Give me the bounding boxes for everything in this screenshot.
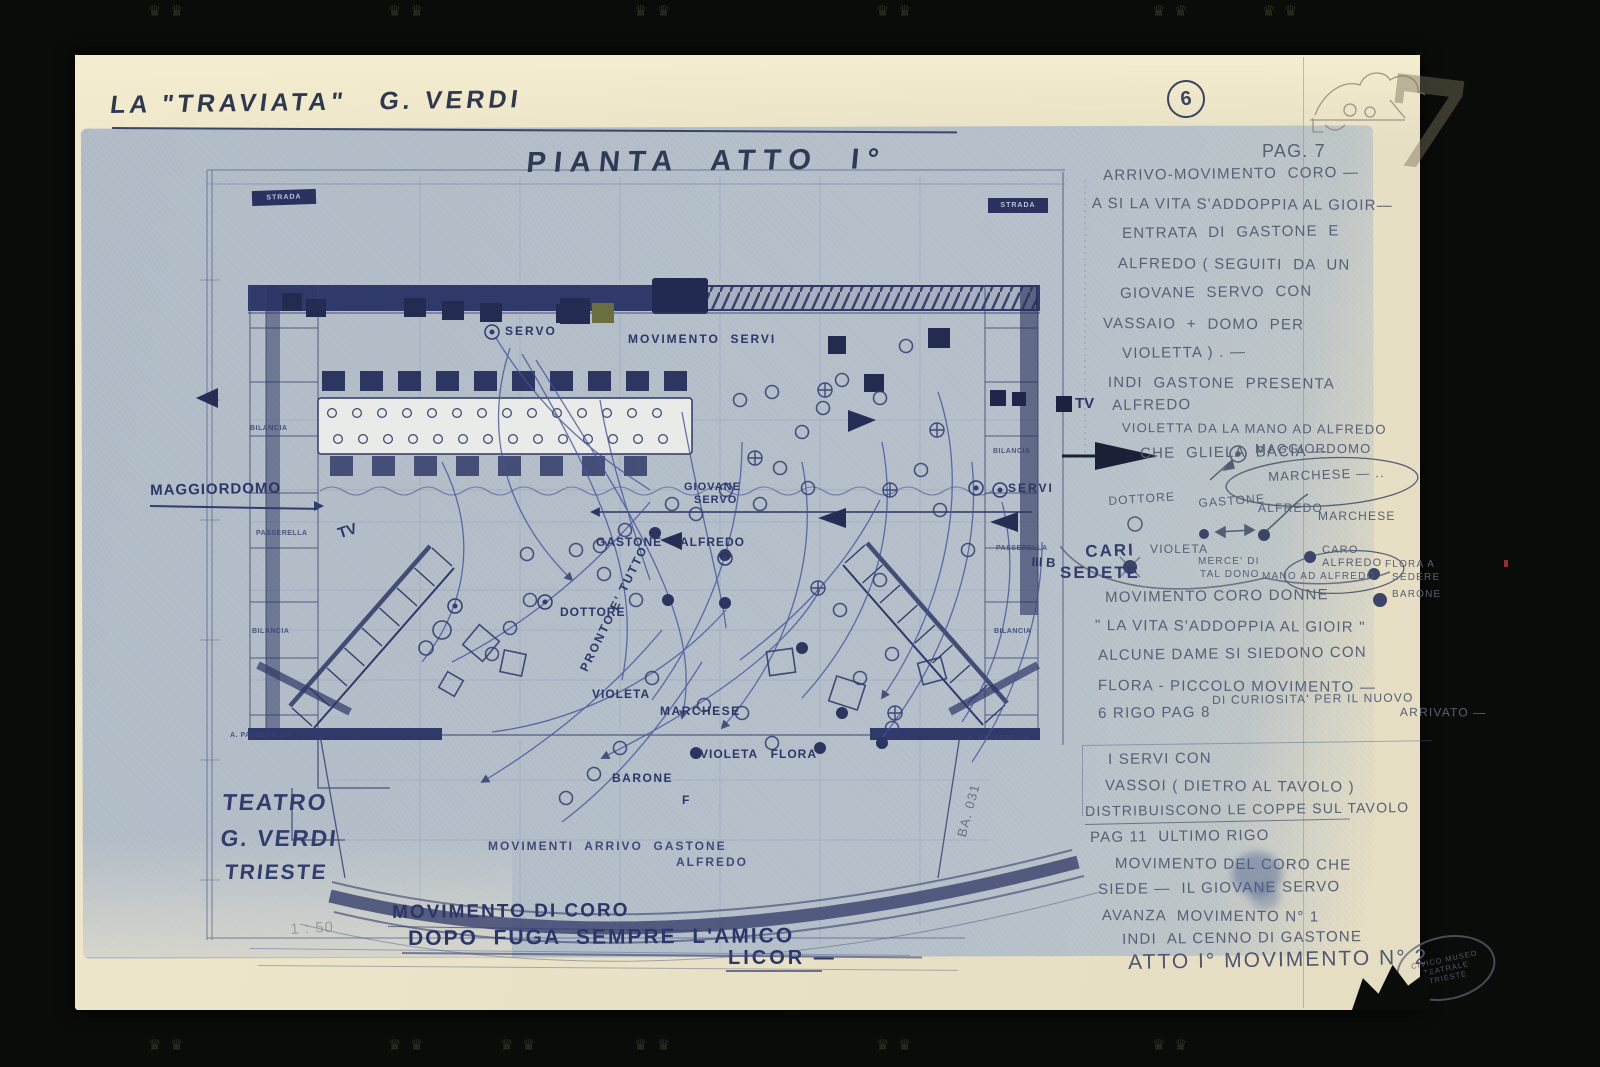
bilancia-right-1: BILANCIA bbox=[993, 448, 1030, 455]
note-line: INDI GASTONE PRESENTA bbox=[1108, 375, 1335, 392]
plan-label-alfredo: ALFREDO bbox=[680, 536, 745, 549]
note-line: PAG 11 ULTIMO RIGO bbox=[1090, 828, 1270, 846]
theater-name-3: TRIESTE bbox=[224, 862, 329, 884]
note-line: SIEDE — IL GIOVANE SERVO bbox=[1098, 879, 1340, 898]
note-line: INDI AL CENNO DI GASTONE bbox=[1122, 929, 1362, 948]
sketch-sedere: SEDERE bbox=[1392, 573, 1440, 584]
page-numeral-7: 7 bbox=[1373, 47, 1477, 203]
note-line: ALCUNE DAME SI SIEDONO CON bbox=[1098, 645, 1367, 664]
note-line: AVANZA MOVIMENTO N° 1 bbox=[1102, 908, 1320, 925]
plan-label-gastone: GASTONE bbox=[596, 536, 662, 549]
crown-mark-icon: ♛ bbox=[657, 1036, 670, 1054]
sketch-tal-dono: TAL DONO bbox=[1200, 570, 1260, 581]
crown-mark-icon: ♛ bbox=[170, 1036, 183, 1054]
crown-mark-icon: ♛ bbox=[500, 1036, 513, 1054]
plan-label-marchese: MARCHESE bbox=[660, 705, 741, 718]
plan-label-violeta-flora: VIOLETA FLORA bbox=[700, 748, 817, 761]
crown-mark-icon: ♛ bbox=[634, 2, 647, 20]
note-line: GIOVANE SERVO CON bbox=[1120, 284, 1312, 302]
sketch-caro-alfredo: ALFREDO bbox=[1322, 558, 1382, 570]
crown-mark-icon: ♛ bbox=[170, 2, 183, 20]
plan-label-arrivo: MOVIMENTI ARRIVO GASTONE bbox=[488, 840, 727, 853]
note-line: DI CURIOSITA' PER IL NUOVO bbox=[1212, 692, 1414, 707]
crown-mark-icon: ♛ bbox=[148, 2, 161, 20]
note-line: A SI LA VITA S'ADDOPPIA AL GIOIR— bbox=[1092, 196, 1393, 214]
sketch-barone: BARONE bbox=[1392, 590, 1441, 601]
note-line: ENTRATA DI GASTONE E bbox=[1122, 223, 1340, 241]
note-line: MOVIMENTO CORO DONNE bbox=[1105, 587, 1329, 605]
bilancia-right-2: BILANCIA bbox=[994, 628, 1031, 635]
sketch-violeta: VIOLETA bbox=[1150, 543, 1208, 556]
servi-bracket bbox=[1082, 746, 1083, 816]
bottom-note-mov-coro: MOVIMENTO DI CORO bbox=[392, 901, 630, 923]
maggiordomo-arrowhead bbox=[314, 501, 324, 511]
note-line: VASSOI ( DIETRO AL TAVOLO ) bbox=[1105, 778, 1355, 795]
crown-mark-icon: ♛ bbox=[876, 1036, 889, 1054]
scale-note: 1 : 50 bbox=[290, 920, 334, 938]
plan-label-sedete: SEDETE bbox=[1060, 564, 1140, 582]
strada-label-left: STRADA bbox=[252, 189, 316, 206]
plan-label-movimento-servi: MOVIMENTO SERVI bbox=[628, 333, 776, 346]
crown-mark-icon: ♛ bbox=[1174, 1036, 1187, 1054]
passerella-left: PASSERELLA bbox=[256, 530, 308, 537]
banquet-table bbox=[318, 398, 692, 454]
note-line: ALFREDO ( SEGUITI DA UN bbox=[1118, 256, 1351, 273]
plan-label-servi: SERVI bbox=[1008, 482, 1054, 495]
crown-mark-icon: ♛ bbox=[898, 2, 911, 20]
note-line: VASSAIO + DOMO PER bbox=[1103, 316, 1304, 333]
note-line: 6 RIGO PAG 8 bbox=[1098, 705, 1211, 722]
bottom-note-licor: LICOR — bbox=[728, 948, 837, 969]
crown-mark-icon: ♛ bbox=[388, 1036, 401, 1054]
plan-label-arrivo-alfredo: ALFREDO bbox=[676, 856, 748, 869]
plan-label-servo: SERVO bbox=[505, 325, 557, 338]
crown-mark-icon: ♛ bbox=[1262, 2, 1275, 20]
theater-name-1: TEATRO bbox=[221, 790, 328, 814]
plan-label-tally: III B bbox=[1031, 555, 1056, 570]
note-line: I SERVI CON bbox=[1108, 751, 1212, 768]
crown-mark-icon: ♛ bbox=[410, 1036, 423, 1054]
strada-label-right: STRADA bbox=[988, 198, 1048, 213]
plan-label-f: F bbox=[682, 794, 689, 807]
sketch-mano: MANO AD ALFREDO bbox=[1262, 572, 1376, 583]
chair-row-bottom bbox=[330, 456, 647, 476]
crown-mark-icon: ♛ bbox=[1152, 2, 1165, 20]
note-line: VIOLETTA ) . — bbox=[1122, 344, 1246, 361]
note-line: VIOLETTA DA LA MANO AD ALFREDO bbox=[1122, 421, 1387, 436]
a-passerella-right: A. PASSERELLA bbox=[968, 735, 1030, 742]
crown-mark-icon: ♛ bbox=[876, 2, 889, 20]
red-speck bbox=[1504, 560, 1508, 567]
plan-title: PIANTA ATTO I° bbox=[525, 144, 888, 178]
crown-mark-icon: ♛ bbox=[634, 1036, 647, 1054]
pag-heading: PAG. 7 bbox=[1262, 142, 1326, 161]
chair-row-top bbox=[322, 371, 687, 391]
a-passerella-left: A. PASSERELLA bbox=[230, 732, 292, 739]
bilancia-left-2: BILANCIA bbox=[252, 628, 289, 635]
plan-label-giovane: GIOVANE bbox=[684, 482, 741, 494]
underline-licor bbox=[726, 970, 822, 972]
tv-box-right bbox=[1056, 396, 1072, 412]
sketch-flora-a: FLORA A bbox=[1385, 560, 1435, 571]
note-line: ARRIVO-MOVIMENTO CORO — bbox=[1103, 165, 1359, 184]
plan-label-maggiordomo: MAGGIORDOMO bbox=[150, 481, 281, 499]
crown-mark-icon: ♛ bbox=[522, 1036, 535, 1054]
plan-label-tv-right: TV bbox=[1075, 396, 1094, 412]
document-title: LA "TRAVIATA" G. VERDI bbox=[109, 86, 524, 118]
note-line: ARRIVATO — bbox=[1400, 706, 1487, 719]
sketch-maggiordomo: MAGGIORDOMO bbox=[1255, 442, 1371, 456]
sketch-caro: CARO bbox=[1322, 545, 1359, 557]
olive-chair bbox=[592, 303, 614, 323]
crown-mark-icon: ♛ bbox=[657, 2, 670, 20]
sketch-alfredo: ALFREDO bbox=[1258, 502, 1323, 515]
bilancia-left-1: BILANCIA bbox=[250, 425, 287, 432]
crown-mark-icon: ♛ bbox=[1174, 2, 1187, 20]
furniture bbox=[419, 621, 946, 710]
plan-label-cari: CARI bbox=[1085, 541, 1135, 561]
crown-mark-icon: ♛ bbox=[1284, 2, 1297, 20]
note-line: ALFREDO bbox=[1112, 397, 1191, 414]
passerella-right: PASSERELLA bbox=[996, 545, 1048, 552]
plan-label-giovane-servo: SERVO bbox=[694, 495, 737, 507]
crown-mark-icon: ♛ bbox=[148, 1036, 161, 1054]
crown-mark-icon: ♛ bbox=[388, 2, 401, 20]
crown-mark-icon: ♛ bbox=[410, 2, 423, 20]
crown-mark-icon: ♛ bbox=[898, 1036, 911, 1054]
theater-name-2: G. VERDI bbox=[219, 826, 339, 850]
plan-label-barone: BARONE bbox=[612, 772, 673, 785]
people-filled bbox=[649, 527, 888, 759]
scanned-blueprint-page: LA "TRAVIATA" G. VERDI PIANTA ATTO I° 6 … bbox=[0, 0, 1600, 1067]
crown-mark-icon: ♛ bbox=[1152, 1036, 1165, 1054]
note-line: " LA VITA S'ADDOPPIA AL GIOIR " bbox=[1095, 618, 1366, 636]
plan-label-violeta: VIOLETA bbox=[592, 688, 650, 701]
sketch-marchese: MARCHESE bbox=[1318, 510, 1396, 523]
sketch-merce: MERCE' DI bbox=[1198, 557, 1260, 568]
ink-smudge-2 bbox=[1250, 884, 1280, 910]
